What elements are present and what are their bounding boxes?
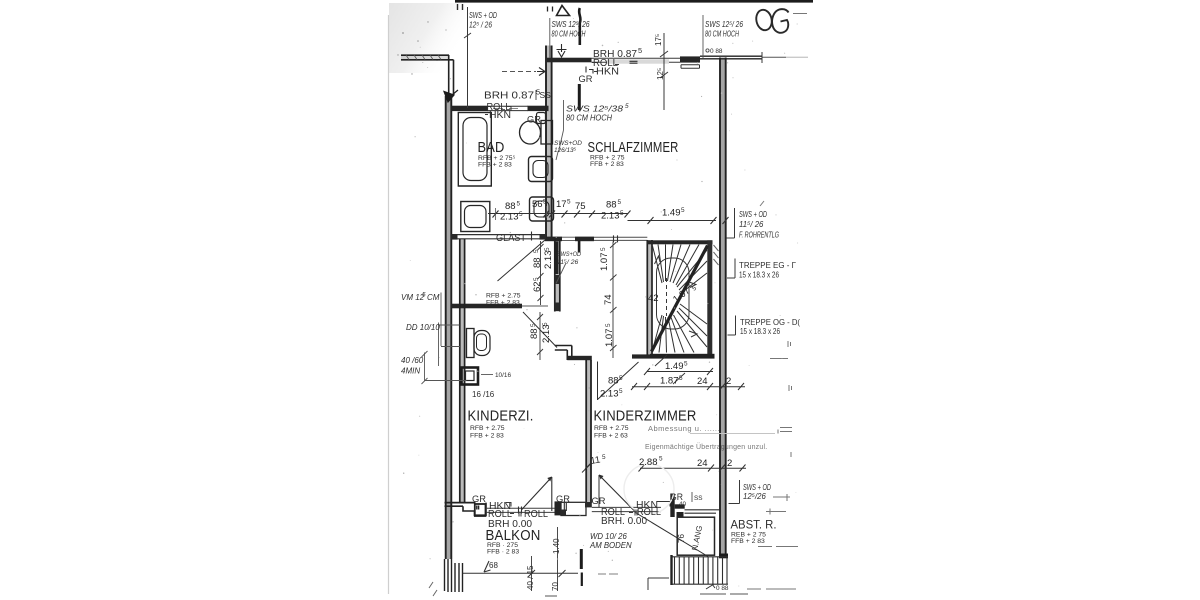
- svg-text:Eigenmächtige Übertragungen un: Eigenmächtige Übertragungen unzul.: [645, 443, 767, 451]
- svg-text:RFB + 2.75: RFB + 2.75: [594, 425, 629, 432]
- svg-text:GR: GR: [579, 74, 593, 85]
- svg-text:12⁵ / 26: 12⁵ / 26: [469, 21, 493, 30]
- svg-text:TREPPE OG - D(: TREPPE OG - D(: [740, 318, 800, 327]
- svg-text:2.13: 2.13: [500, 212, 519, 223]
- svg-text:RFB + 2.75: RFB + 2.75: [470, 425, 505, 432]
- svg-text:24: 24: [697, 376, 708, 387]
- svg-text:80 CM HOCH: 80 CM HOCH: [705, 30, 739, 39]
- svg-text:RFB + 2.75: RFB + 2.75: [486, 293, 521, 300]
- svg-text:2: 2: [727, 458, 732, 469]
- svg-text:75: 75: [575, 201, 586, 212]
- svg-text:0 88: 0 88: [710, 48, 723, 55]
- svg-text:10/16: 10/16: [495, 372, 511, 379]
- svg-text:42: 42: [648, 293, 659, 304]
- svg-text:15 x 18.3 x 26: 15 x 18.3 x 26: [740, 327, 780, 336]
- svg-text:HKN: HKN: [489, 110, 511, 121]
- svg-text:SS: SS: [540, 90, 552, 100]
- svg-text:SWS + OD: SWS + OD: [469, 11, 497, 20]
- svg-text:GR: GR: [556, 494, 570, 505]
- svg-text:17: 17: [556, 199, 567, 210]
- svg-text:88: 88: [532, 257, 543, 268]
- svg-text:88: 88: [608, 376, 619, 387]
- svg-text:GR: GR: [527, 115, 541, 126]
- svg-text:88: 88: [505, 201, 516, 212]
- svg-text:4MIN: 4MIN: [401, 367, 420, 376]
- svg-text:5: 5: [684, 361, 688, 368]
- svg-text:2: 2: [726, 376, 731, 387]
- svg-text:2.13: 2.13: [541, 325, 552, 344]
- svg-text:5: 5: [679, 375, 683, 382]
- svg-text:GLAST: GLAST: [496, 233, 526, 244]
- svg-text:76: 76: [677, 534, 686, 543]
- svg-text:5: 5: [533, 277, 540, 281]
- svg-text:AM BODEN: AM BODEN: [589, 541, 632, 550]
- svg-text:24: 24: [697, 458, 708, 469]
- svg-text:2.13: 2.13: [601, 211, 620, 222]
- svg-text:70: 70: [551, 582, 560, 591]
- svg-text:GR: GR: [472, 494, 486, 505]
- svg-text:5: 5: [619, 375, 623, 382]
- svg-text:5: 5: [543, 199, 547, 206]
- svg-text:5: 5: [422, 292, 426, 299]
- svg-text:11⁵/ 26: 11⁵/ 26: [557, 259, 578, 266]
- svg-text:1.49: 1.49: [662, 208, 681, 219]
- svg-text:F. ROHRENTLG: F. ROHRENTLG: [739, 231, 779, 240]
- svg-text:126/13⁵: 126/13⁵: [554, 147, 577, 154]
- svg-text:40 /60: 40 /60: [401, 356, 424, 365]
- svg-text:2.13: 2.13: [543, 251, 554, 270]
- svg-text:FFB + 2 83: FFB + 2 83: [731, 538, 765, 545]
- svg-text:BAD: BAD: [478, 140, 505, 156]
- svg-text:1.40: 1.40: [552, 538, 561, 554]
- svg-text:5: 5: [605, 323, 612, 327]
- svg-text:FFB + 2 83: FFB + 2 83: [590, 161, 624, 168]
- svg-text:12⁵/26: 12⁵/26: [743, 492, 766, 501]
- svg-text:5: 5: [530, 323, 537, 327]
- svg-text:1.07: 1.07: [599, 253, 610, 272]
- svg-text:FFB + 2 63: FFB + 2 63: [594, 433, 628, 440]
- svg-text:5: 5: [659, 456, 663, 463]
- svg-text:62: 62: [532, 281, 543, 292]
- svg-text:40: 40: [679, 501, 687, 508]
- svg-text:15 x 18.3 x 26: 15 x 18.3 x 26: [739, 271, 779, 280]
- svg-text:1.07: 1.07: [604, 329, 615, 348]
- svg-text:5: 5: [681, 207, 685, 214]
- svg-text:KINDERZIMMER: KINDERZIMMER: [594, 409, 697, 425]
- svg-text:5: 5: [542, 322, 549, 326]
- svg-text:FFB · 2 83: FFB · 2 83: [487, 549, 519, 556]
- svg-text:88: 88: [529, 328, 540, 339]
- svg-text:5: 5: [544, 247, 551, 251]
- svg-text:16 /16: 16 /16: [472, 390, 495, 399]
- svg-text:WD 10/ 26: WD 10/ 26: [590, 532, 627, 541]
- svg-text:BRH 0.87: BRH 0.87: [484, 91, 535, 102]
- svg-text:2.88: 2.88: [639, 457, 658, 468]
- svg-text:GR: GR: [592, 496, 606, 507]
- svg-text:5: 5: [619, 388, 623, 395]
- svg-text:TREPPE EG - Γ: TREPPE EG - Γ: [739, 261, 797, 270]
- svg-text:5: 5: [620, 210, 624, 217]
- svg-text:68: 68: [489, 561, 498, 570]
- svg-text:Abmessung u. ......: Abmessung u. ......: [648, 424, 720, 433]
- svg-text:SWS 12⁵/ 26: SWS 12⁵/ 26: [552, 20, 591, 29]
- svg-text:SWS+OD: SWS+OD: [554, 140, 582, 147]
- svg-text:56: 56: [532, 199, 543, 210]
- svg-text:HKN: HKN: [596, 67, 619, 78]
- svg-text:12⁵: 12⁵: [656, 68, 665, 80]
- svg-text:KINDERZI.: KINDERZI.: [468, 409, 534, 425]
- svg-text:SWS+OD: SWS+OD: [557, 251, 581, 258]
- svg-text:11⁵/ 26: 11⁵/ 26: [739, 220, 764, 229]
- svg-text:80 CM HOCH: 80 CM HOCH: [552, 30, 586, 39]
- svg-text:SWS 12⁵/38: SWS 12⁵/38: [566, 105, 624, 114]
- svg-text:5: 5: [602, 454, 606, 461]
- svg-text:0 88: 0 88: [716, 585, 729, 592]
- svg-text:CM: CM: [427, 293, 440, 302]
- svg-text:5: 5: [618, 199, 622, 206]
- svg-text:5: 5: [533, 249, 540, 253]
- svg-text:SWS 12⁵/ 26: SWS 12⁵/ 26: [705, 20, 744, 29]
- svg-text:5: 5: [519, 211, 523, 218]
- svg-text:88: 88: [606, 200, 617, 211]
- svg-text:11: 11: [590, 454, 602, 467]
- svg-text:FFB + 2 83: FFB + 2 83: [470, 433, 504, 440]
- svg-text:DD 10/10: DD 10/10: [406, 323, 440, 332]
- svg-text:FFB + 2.83: FFB + 2.83: [486, 300, 520, 307]
- svg-text:5: 5: [517, 201, 521, 208]
- svg-text:ABST. R.: ABST. R.: [731, 518, 777, 532]
- svg-text:SWS + OD: SWS + OD: [743, 483, 771, 492]
- svg-text:1.49: 1.49: [665, 361, 684, 372]
- svg-text:74: 74: [603, 294, 614, 305]
- svg-text:2.13: 2.13: [600, 389, 619, 400]
- svg-text:17⁵: 17⁵: [654, 34, 663, 46]
- svg-text:5: 5: [567, 199, 571, 206]
- svg-text:SS: SS: [694, 495, 703, 502]
- svg-text:SWS + OD: SWS + OD: [739, 210, 767, 219]
- svg-text:40 / 15: 40 / 15: [526, 565, 535, 590]
- svg-text:80 CM HOCH: 80 CM HOCH: [566, 114, 612, 123]
- svg-text:FFB + 2 83: FFB + 2 83: [478, 162, 512, 169]
- svg-text:1.87: 1.87: [660, 376, 679, 387]
- svg-text:5: 5: [600, 247, 607, 251]
- svg-text:5: 5: [625, 103, 629, 110]
